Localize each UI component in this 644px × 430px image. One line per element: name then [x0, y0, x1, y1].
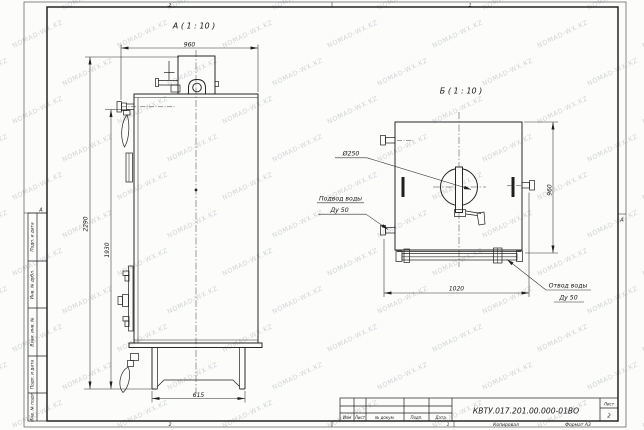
dim-1020-value: 1020 [449, 286, 464, 293]
drawing-sheet: NOMAD-WX.KZNOMAD-WX.KZNOMAD-WX.KZNOMAD-W… [0, 0, 644, 430]
engineering-drawing: 2 1 2 1 А А Подп. и дата Инв. № дубл. Вз… [0, 0, 644, 430]
dim-2290-value: 2290 [83, 216, 90, 231]
title-block: Изм Лист № докум. Подп. Дата КВТУ.017.20… [340, 398, 618, 421]
paper-border [24, 2, 626, 427]
valve-lever [122, 115, 129, 147]
sheet-value: 2 [607, 414, 611, 420]
col-dokum: № докум. [374, 415, 395, 420]
stamp-label-2: Инв. № дубл. [30, 270, 36, 299]
callout-flue-value: Ø250 [342, 150, 360, 158]
base-stand [129, 343, 262, 389]
sheet-frame: 2 1 2 1 А А [24, 2, 626, 428]
view-b: Б ( 1 : 10 ) [317, 87, 591, 303]
door-hinges [118, 266, 133, 331]
lifting-eye-hole [193, 83, 202, 92]
dim-960-top: 960 [121, 42, 258, 101]
dim-1930: 1930 [104, 110, 130, 390]
footer-format: Формат А3 [565, 422, 591, 428]
view-a: А ( 1 : 10 ) [83, 22, 263, 403]
stamp-label-1: Подп. и дата [30, 222, 36, 252]
view-b-label: Б ( 1 : 10 ) [440, 87, 482, 96]
zone-top-left: 2 [169, 2, 172, 8]
dim-615: 615 [152, 391, 245, 403]
col-list: Лист [354, 415, 366, 420]
zone-right: А [619, 218, 624, 224]
boiler-body [134, 50, 258, 394]
callout-inlet-line2: Ду 50 [329, 207, 348, 214]
callout-outlet: Отвод воды Ду 50 [507, 260, 591, 303]
stamp-label-3: Взам. инв. № [30, 317, 36, 347]
stamp-label-4: Подп. и дата [30, 360, 36, 390]
col-podp: Подп. [410, 415, 422, 420]
slot-left [402, 177, 405, 197]
door-handle [477, 212, 485, 225]
dim-960-right-value: 960 [547, 184, 554, 196]
view-a-label: А ( 1 : 10 ) [172, 22, 215, 31]
zone-left: А [38, 208, 43, 214]
ash-door-handle [120, 354, 139, 393]
col-izm: Изм [343, 415, 351, 420]
dim-615-value: 615 [193, 392, 205, 399]
stamp-label-5: Инв. № подл. [30, 392, 36, 422]
safety-valve [117, 102, 176, 183]
zone-top-right: 1 [469, 2, 472, 8]
slot-right [512, 177, 515, 197]
callout-inlet: Подвод воды Ду 50 [317, 196, 388, 230]
body-square [395, 112, 522, 267]
dim-960-top-value: 960 [184, 42, 196, 49]
stamp-column: Подп. и дата Инв. № дубл. Взам. инв. № П… [28, 213, 47, 422]
dim-1930-value: 1930 [104, 242, 111, 257]
doc-number: КВТУ.017.201.00.000-01ВО [473, 407, 579, 416]
footer-copied: Копировал [493, 422, 519, 428]
sheet-label: Лист [603, 402, 615, 407]
hinge-pin [456, 167, 463, 213]
chimney-box [156, 56, 219, 94]
zone-bottom-right: 1 [447, 422, 450, 428]
col-data: Дата [434, 415, 446, 420]
callout-outlet-line1: Отвод воды [549, 283, 588, 290]
pipe-stub-top-left [381, 136, 414, 146]
zone-bottom-left: 2 [169, 422, 172, 428]
callout-outlet-line2: Ду 50 [558, 295, 577, 302]
pipe-stub-right [507, 181, 535, 191]
callout-inlet-line1: Подвод воды [319, 196, 362, 203]
